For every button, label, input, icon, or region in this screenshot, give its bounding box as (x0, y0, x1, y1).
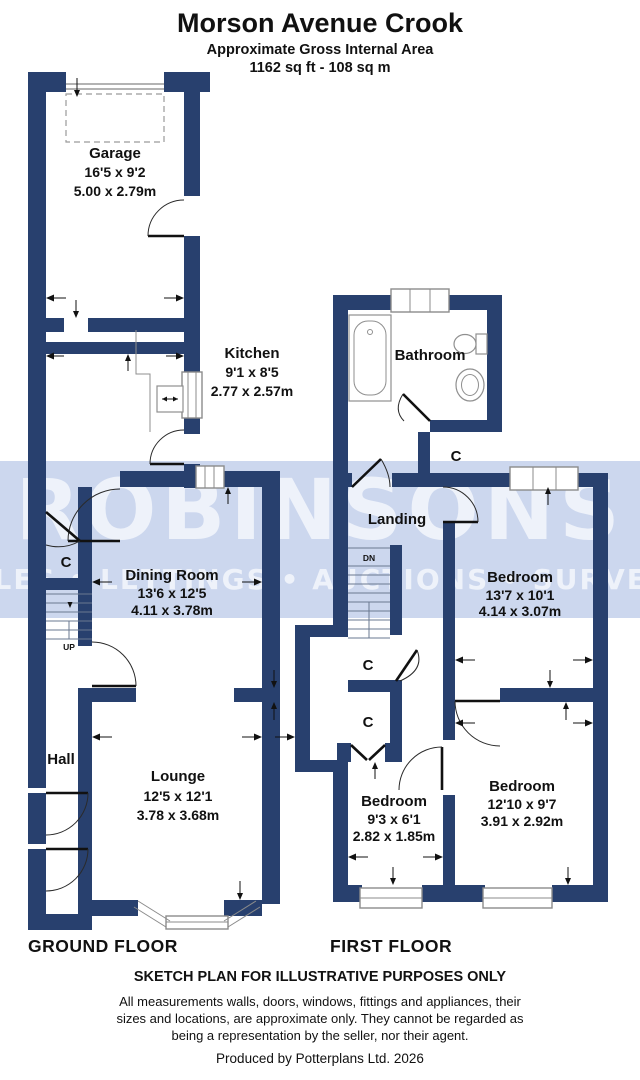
page-title: Morson Avenue Crook (0, 8, 640, 39)
disclaimer-title: SKETCH PLAN FOR ILLUSTRATIVE PURPOSES ON… (0, 969, 640, 985)
kitchen-dim-imperial: 9'1 x 8'5 (225, 364, 279, 380)
disclaimer-line-1: All measurements walls, doors, windows, … (0, 993, 640, 1010)
sink-icon (456, 369, 484, 401)
ground-floor-label: GROUND FLOOR (28, 936, 178, 957)
landing-label: Landing (368, 511, 426, 528)
kitchen-dim-metric: 2.77 x 2.57m (211, 383, 294, 399)
kitchen-label: Kitchen (224, 345, 279, 362)
bedroom1-dim-imperial: 13'7 x 10'1 (486, 587, 555, 603)
kitchen-window (182, 372, 202, 418)
bedroom3-label: Bedroom (361, 793, 427, 810)
gf-closet-label: C (61, 554, 72, 571)
first-floor-label: FIRST FLOOR (330, 936, 452, 957)
garage-dim-imperial: 16'5 x 9'2 (84, 164, 145, 180)
garage-label: Garage (89, 145, 141, 162)
floorplan-page: Morson Avenue Crook Approximate Gross In… (0, 0, 640, 1080)
ff-closet-mid-label: C (363, 657, 374, 674)
bedroom3-dim-metric: 2.82 x 1.85m (353, 828, 436, 844)
first-floor-plan: Bathroom C Landing DN Bedroom 13'7 x 10'… (275, 289, 608, 908)
bedroom1-dim-metric: 4.14 x 3.07m (479, 603, 562, 619)
subtitle: Approximate Gross Internal Area (0, 42, 640, 58)
header: Morson Avenue Crook Approximate Gross In… (0, 8, 640, 76)
bedroom2-dim-metric: 3.91 x 2.92m (481, 813, 564, 829)
disclaimer-line-3: being a representation by the seller, no… (0, 1027, 640, 1044)
stairs-down-label: DN (363, 553, 375, 563)
bedroom2-label: Bedroom (489, 778, 555, 795)
bedroom3-dim-imperial: 9'3 x 6'1 (367, 811, 421, 827)
garage-dim-metric: 5.00 x 2.79m (74, 183, 157, 199)
dining-dim-metric: 4.11 x 3.78m (131, 602, 213, 618)
gross-internal-area: 1162 sq ft - 108 sq m (0, 60, 640, 76)
bedroom1-window (510, 467, 578, 490)
garage-door (66, 84, 164, 142)
producer-credit: Produced by Potterplans Ltd. 2026 (0, 1051, 640, 1066)
bedroom2-dim-imperial: 12'10 x 9'7 (488, 796, 557, 812)
bedroom3-window (360, 888, 422, 908)
ground-floor-plan: Garage 16'5 x 9'2 5.00 x 2.79m Kitchen 9… (28, 72, 293, 930)
dining-dim-imperial: 13'6 x 12'5 (138, 585, 207, 601)
bathroom-window (391, 289, 449, 312)
dining-room-label: Dining Room (125, 567, 218, 584)
ff-closet-lower-label: C (363, 714, 374, 731)
floorplan-drawing: Garage 16'5 x 9'2 5.00 x 2.79m Kitchen 9… (0, 0, 640, 1080)
dining-window (196, 466, 224, 488)
bedroom2-window (483, 888, 552, 908)
lounge-dim-metric: 3.78 x 3.68m (137, 807, 220, 823)
bedroom1-label: Bedroom (487, 569, 553, 586)
first-floor-walls (295, 295, 608, 902)
bathtub-icon (349, 315, 391, 401)
lounge-label: Lounge (151, 768, 205, 785)
hall-label: Hall (47, 751, 75, 768)
disclaimer-line-2: sizes and locations, are approximate onl… (0, 1010, 640, 1027)
lounge-dim-imperial: 12'5 x 12'1 (144, 788, 213, 804)
ff-closet-top-label: C (451, 448, 462, 465)
stairs-up-label: UP (63, 642, 75, 652)
bathroom-label: Bathroom (395, 347, 466, 364)
disclaimer-text: All measurements walls, doors, windows, … (0, 993, 640, 1044)
